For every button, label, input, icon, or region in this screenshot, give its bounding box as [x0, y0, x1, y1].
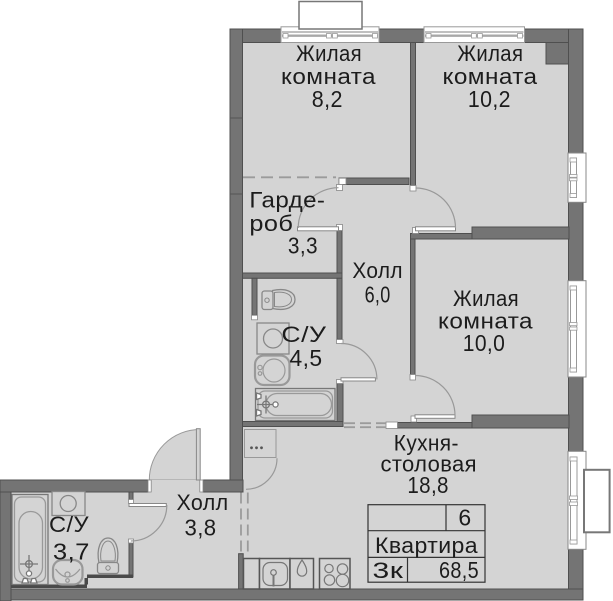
svg-text:С/У: С/У [281, 322, 326, 347]
svg-text:3,7: 3,7 [53, 539, 90, 565]
svg-text:10,2: 10,2 [468, 86, 511, 112]
svg-text:6,0: 6,0 [365, 281, 391, 307]
svg-text:3к: 3к [373, 558, 404, 583]
svg-text:Жилая: Жилая [296, 41, 362, 66]
svg-text:Холл: Холл [177, 490, 229, 515]
svg-text:Квартира: Квартира [375, 533, 478, 558]
svg-text:3,3: 3,3 [288, 233, 318, 259]
svg-text:Гарде-: Гарде- [249, 188, 325, 213]
svg-text:68,5: 68,5 [439, 557, 479, 583]
svg-text:С/У: С/У [49, 512, 89, 537]
svg-text:10,0: 10,0 [463, 330, 506, 356]
svg-text:4,5: 4,5 [290, 345, 323, 371]
svg-text:роб: роб [249, 211, 293, 236]
svg-text:Холл: Холл [352, 258, 403, 283]
svg-text:Жилая: Жилая [457, 41, 523, 66]
svg-text:8,2: 8,2 [312, 86, 343, 112]
svg-text:3,8: 3,8 [185, 514, 217, 540]
svg-text:6: 6 [458, 505, 471, 531]
svg-text:18,8: 18,8 [407, 472, 449, 498]
svg-text:Жилая: Жилая [453, 286, 519, 311]
